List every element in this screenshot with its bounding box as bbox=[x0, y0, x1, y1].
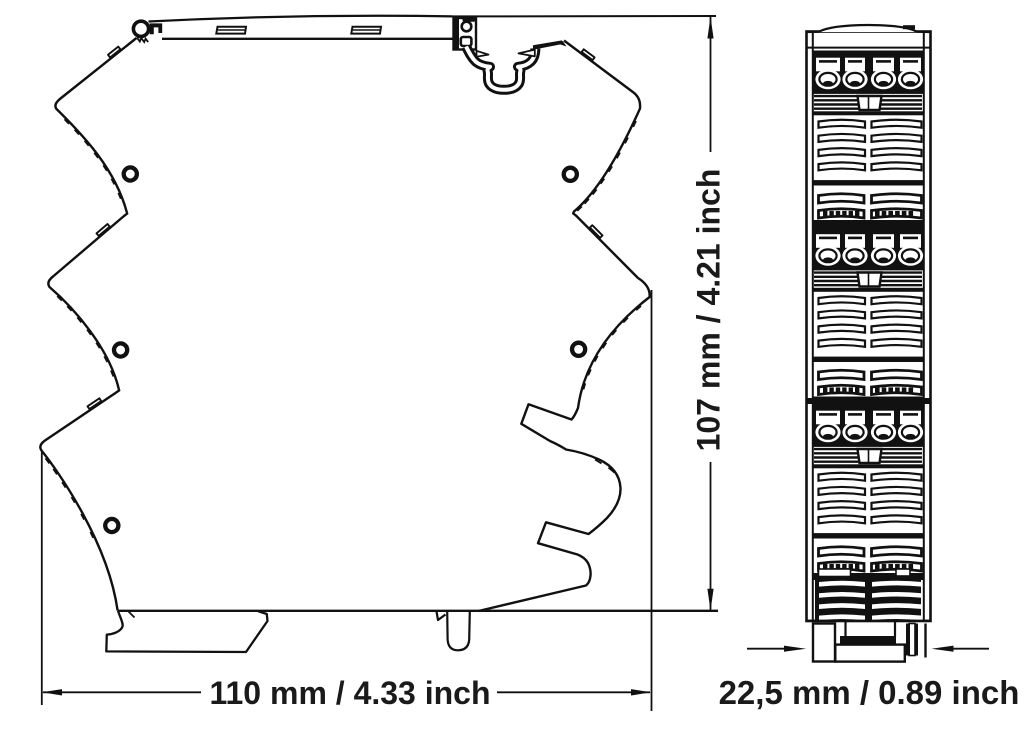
svg-text:110 mm / 4.33 inch: 110 mm / 4.33 inch bbox=[209, 675, 490, 711]
svg-text:107 mm / 4.21 inch: 107 mm / 4.21 inch bbox=[691, 169, 727, 452]
svg-text:22,5 mm / 0.89 inch: 22,5 mm / 0.89 inch bbox=[719, 674, 1020, 711]
